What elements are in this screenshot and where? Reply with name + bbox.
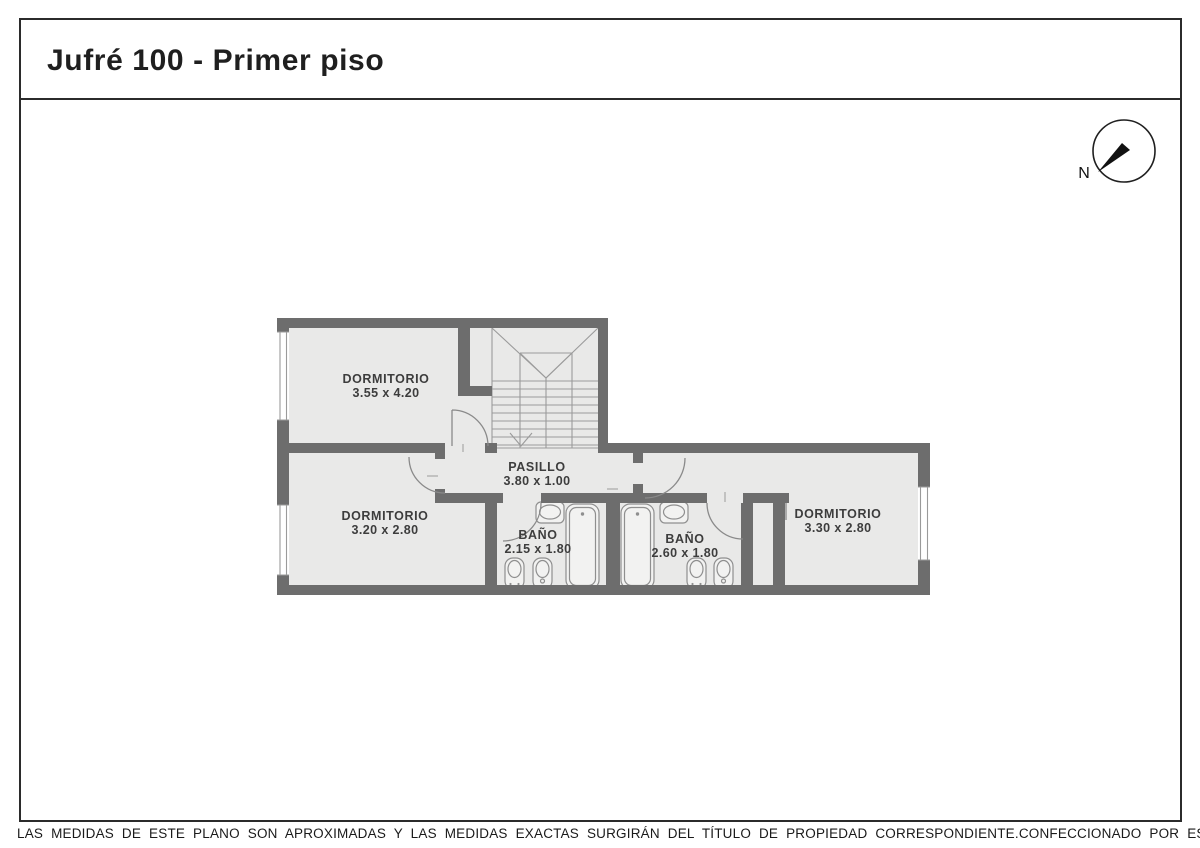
toilet-left-icon bbox=[505, 558, 524, 589]
footer-disclaimer: LAS MEDIDAS DE ESTE PLANO SON APROXIMADA… bbox=[17, 826, 1019, 841]
bidet-right-icon bbox=[714, 558, 733, 589]
label-dorm-right: DORMITORIO bbox=[794, 507, 881, 521]
dims-dorm-top-left: 3.55 x 4.20 bbox=[353, 386, 420, 400]
bathtub-right-icon bbox=[621, 504, 654, 589]
bidet-left-icon bbox=[533, 558, 552, 589]
dims-bano-right: 2.60 x 1.80 bbox=[652, 546, 719, 560]
dims-bano-left: 2.15 x 1.80 bbox=[505, 542, 572, 556]
label-bano-left: BAÑO bbox=[518, 527, 557, 542]
dims-dorm-right: 3.30 x 2.80 bbox=[805, 521, 872, 535]
window-dorm-bottom-left bbox=[277, 505, 289, 575]
label-dorm-bottom-left: DORMITORIO bbox=[341, 509, 428, 523]
dims-pasillo: 3.80 x 1.00 bbox=[504, 474, 571, 488]
label-pasillo: PASILLO bbox=[508, 460, 565, 474]
floor-plan-svg: DORMITORIO 3.55 x 4.20 PASILLO 3.80 x 1.… bbox=[0, 0, 1200, 848]
compass-icon: N bbox=[1078, 120, 1155, 182]
page: DORMITORIO 3.55 x 4.20 PASILLO 3.80 x 1.… bbox=[0, 0, 1200, 848]
footer-credit: CONFECCIONADO POR ESTUDIO NARTEX bbox=[1019, 826, 1200, 841]
label-bano-right: BAÑO bbox=[665, 531, 704, 546]
compass-north-label: N bbox=[1078, 165, 1090, 182]
footer: LAS MEDIDAS DE ESTE PLANO SON APROXIMADA… bbox=[17, 826, 1185, 841]
window-dorm-right bbox=[918, 487, 930, 560]
dims-dorm-bottom-left: 3.20 x 2.80 bbox=[352, 523, 419, 537]
window-dorm-top-left bbox=[277, 332, 289, 420]
toilet-right-icon bbox=[687, 558, 706, 589]
label-dorm-top-left: DORMITORIO bbox=[342, 372, 429, 386]
